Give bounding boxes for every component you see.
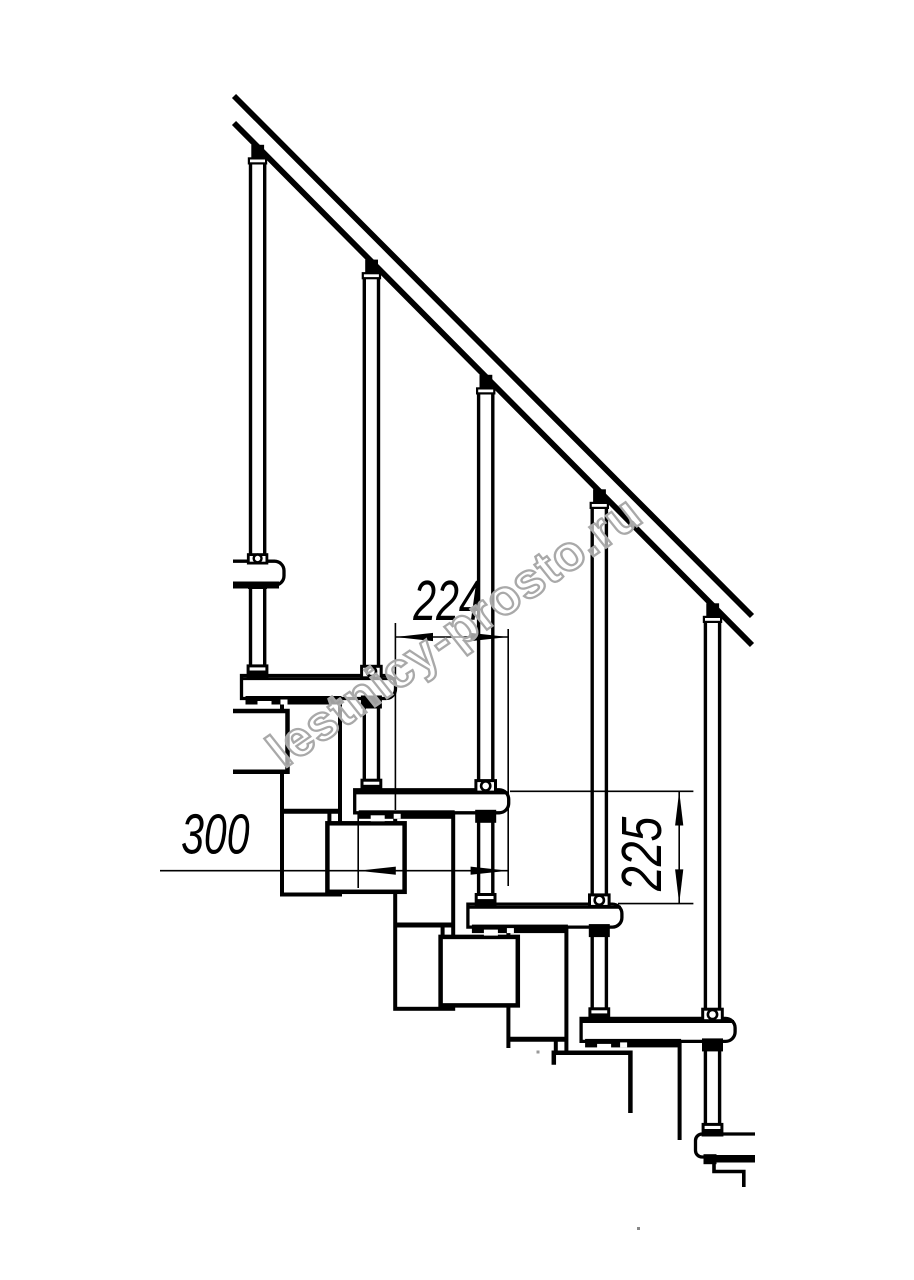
svg-text:300: 300 [181, 802, 250, 866]
svg-text:225: 225 [610, 816, 674, 892]
